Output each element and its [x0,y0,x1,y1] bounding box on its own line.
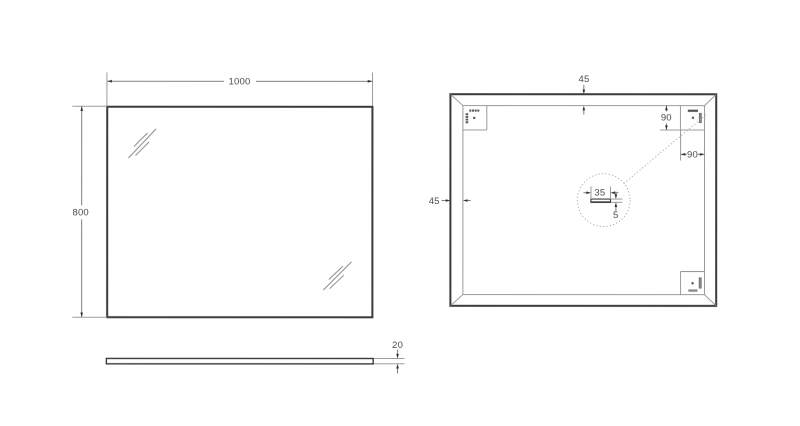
svg-text:800: 800 [72,207,88,218]
svg-text:90: 90 [687,150,698,161]
svg-text:45: 45 [579,74,590,85]
svg-text:35: 35 [594,188,605,199]
svg-text:1000: 1000 [229,76,251,87]
svg-text:45: 45 [429,196,440,207]
svg-text:20: 20 [392,340,403,351]
svg-text:5: 5 [613,210,618,221]
svg-text:90: 90 [661,113,672,124]
